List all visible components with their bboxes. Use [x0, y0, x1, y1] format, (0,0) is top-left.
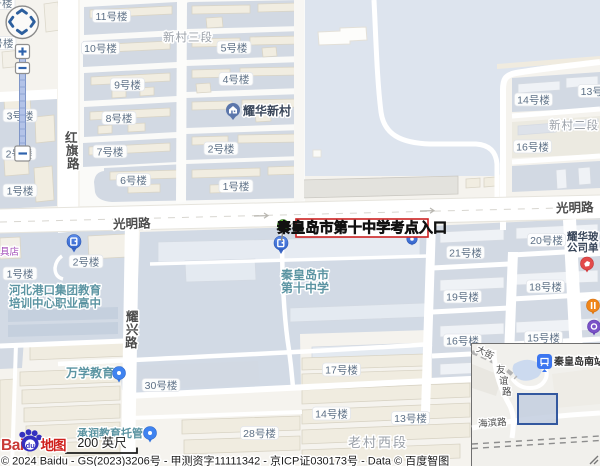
- svg-text:秦皇岛南站: 秦皇岛南站: [553, 355, 600, 368]
- svg-text:15号楼: 15号楼: [527, 331, 560, 344]
- svg-text:14号楼: 14号楼: [315, 407, 348, 420]
- svg-text:2号楼: 2号楼: [208, 142, 235, 155]
- svg-text:秦皇岛市: 秦皇岛市: [280, 267, 329, 282]
- svg-text:du: du: [26, 441, 36, 450]
- svg-text:7号楼: 7号楼: [97, 145, 124, 158]
- svg-text:1号楼: 1号楼: [7, 267, 34, 280]
- svg-text:老村西段: 老村西段: [348, 435, 408, 450]
- svg-text:兴: 兴: [126, 322, 139, 337]
- svg-text:河北港口集团教育: 河北港口集团教育: [9, 283, 101, 297]
- svg-text:2号楼: 2号楼: [73, 255, 100, 268]
- svg-text:耀华新村: 耀华新村: [242, 103, 291, 118]
- svg-text:号楼: 号楼: [0, 37, 14, 50]
- svg-text:21号楼: 21号楼: [449, 246, 482, 259]
- svg-text:第十中学: 第十中学: [281, 280, 329, 295]
- svg-text:28号楼: 28号楼: [243, 427, 276, 440]
- svg-text:30号楼: 30号楼: [145, 379, 178, 392]
- svg-text:具店: 具店: [0, 246, 19, 258]
- svg-text:友: 友: [496, 364, 506, 376]
- svg-text:© 2024 Baidu - GS(2023)3206号 -: © 2024 Baidu - GS(2023)3206号 - 甲测资字11111…: [1, 454, 449, 466]
- svg-text:13号楼: 13号楼: [394, 412, 427, 425]
- svg-text:万学教育: 万学教育: [65, 365, 114, 380]
- svg-text:Bai: Bai: [1, 437, 24, 454]
- svg-text:4号楼: 4号楼: [223, 73, 250, 86]
- svg-text:17号楼: 17号楼: [325, 363, 358, 376]
- svg-text:旗: 旗: [66, 143, 79, 158]
- svg-text:耀: 耀: [125, 310, 139, 324]
- svg-text:11号楼: 11号楼: [96, 10, 128, 23]
- svg-text:1号楼: 1号楼: [223, 180, 250, 193]
- svg-text:红: 红: [65, 130, 78, 145]
- svg-text:20号楼: 20号楼: [530, 234, 563, 247]
- svg-text:新村二段: 新村二段: [549, 118, 599, 132]
- svg-text:13号楼: 13号楼: [581, 85, 600, 98]
- svg-text:9号楼: 9号楼: [114, 78, 141, 91]
- svg-text:秦皇岛市第十中学考点入口: 秦皇岛市第十中学考点入口: [276, 220, 447, 237]
- svg-text:海滨路: 海滨路: [478, 416, 508, 430]
- svg-text:6号楼: 6号楼: [120, 174, 147, 187]
- svg-text:路: 路: [502, 386, 512, 398]
- svg-text:16号楼: 16号楼: [516, 140, 549, 153]
- svg-text:5号楼: 5号楼: [221, 41, 248, 54]
- svg-text:路: 路: [125, 335, 138, 350]
- svg-text:1号楼: 1号楼: [7, 184, 34, 197]
- svg-text:地图: 地图: [41, 437, 66, 453]
- svg-text:号楼: 号楼: [0, 0, 13, 10]
- svg-text:200 英尺: 200 英尺: [77, 436, 126, 450]
- svg-text:路: 路: [67, 156, 80, 171]
- svg-text:培训中心职业高中: 培训中心职业高中: [9, 296, 101, 310]
- svg-text:光明路: 光明路: [112, 215, 151, 231]
- svg-text:10号楼: 10号楼: [84, 42, 117, 55]
- svg-text:19号楼: 19号楼: [446, 290, 479, 303]
- svg-text:14号楼: 14号楼: [517, 93, 550, 106]
- svg-text:18号楼: 18号楼: [529, 280, 562, 293]
- svg-text:新村三段: 新村三段: [163, 30, 213, 44]
- svg-text:谊: 谊: [499, 375, 509, 387]
- svg-text:光明路: 光明路: [555, 199, 594, 215]
- svg-text:8号楼: 8号楼: [106, 112, 133, 125]
- svg-text:公司单: 公司单: [567, 241, 599, 254]
